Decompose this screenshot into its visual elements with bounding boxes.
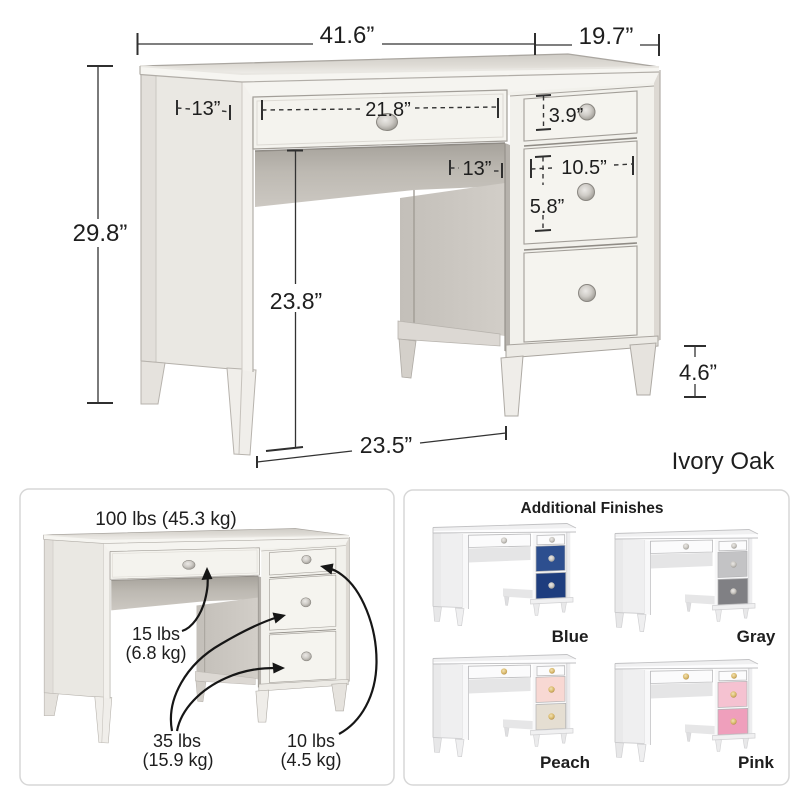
svg-text:19.7”: 19.7”: [579, 23, 634, 50]
svg-text:13”: 13”: [463, 158, 492, 180]
svg-text:4.6”: 4.6”: [679, 360, 717, 385]
svg-text:(4.5 kg): (4.5 kg): [280, 750, 341, 770]
svg-text:Ivory Oak: Ivory Oak: [672, 448, 776, 475]
svg-text:Blue: Blue: [552, 627, 589, 646]
svg-text:10 lbs: 10 lbs: [287, 731, 335, 751]
svg-text:29.8”: 29.8”: [73, 220, 128, 247]
svg-text:10.5”: 10.5”: [561, 157, 607, 179]
svg-text:21.8”: 21.8”: [365, 99, 411, 121]
svg-text:13”: 13”: [192, 98, 221, 120]
svg-text:15 lbs: 15 lbs: [132, 624, 180, 644]
svg-text:5.8”: 5.8”: [530, 196, 564, 218]
svg-text:35 lbs: 35 lbs: [153, 731, 201, 751]
svg-text:23.8”: 23.8”: [270, 288, 322, 314]
svg-text:41.6”: 41.6”: [320, 22, 375, 49]
svg-text:23.5”: 23.5”: [360, 432, 412, 458]
svg-text:Peach: Peach: [540, 753, 590, 772]
svg-text:(6.8 kg): (6.8 kg): [125, 643, 186, 663]
svg-text:100 lbs (45.3 kg): 100 lbs (45.3 kg): [95, 509, 237, 530]
svg-text:(15.9 kg): (15.9 kg): [142, 750, 213, 770]
svg-text:3.9”: 3.9”: [549, 105, 583, 127]
svg-text:Pink: Pink: [738, 753, 774, 772]
svg-text:Additional Finishes: Additional Finishes: [521, 500, 664, 517]
svg-text:Gray: Gray: [737, 627, 776, 646]
